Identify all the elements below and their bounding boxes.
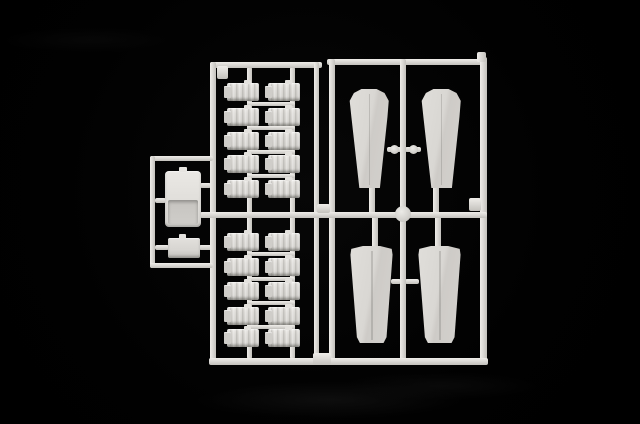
sprue-photo: [0, 0, 640, 424]
rail-tab: [469, 198, 481, 211]
mid-rail: [200, 212, 487, 218]
plastic-sprue: [0, 0, 640, 424]
engine-cylinder-part: [227, 329, 259, 347]
blade-stem: [433, 184, 439, 214]
engine-cylinder-part: [268, 132, 300, 150]
top-rail-right-frame: [327, 59, 486, 65]
engine-cylinder-part: [227, 258, 259, 276]
engine-cylinder-part: [268, 180, 300, 198]
engine-cylinder-part: [268, 83, 300, 101]
tie-bead: [390, 145, 399, 154]
rect-panel-part: [168, 238, 200, 258]
engine-cylinder-part: [268, 258, 300, 276]
loop-top-rail: [150, 156, 213, 161]
cowling-part: [165, 171, 201, 227]
engine-cylinder-part: [227, 282, 259, 300]
blade-stem: [372, 216, 378, 248]
gap-tab: [313, 353, 331, 365]
engine-cylinder-part: [268, 108, 300, 126]
engine-cylinder-part: [268, 329, 300, 347]
engine-cylinder-part: [268, 282, 300, 300]
engine-cylinder-part: [268, 233, 300, 251]
panel-stub: [155, 245, 169, 250]
engine-cylinder-part: [227, 233, 259, 251]
propeller-blade-part: [420, 89, 462, 188]
junction-bead: [395, 206, 411, 222]
propeller-blade-part: [418, 246, 461, 343]
bottom-rail: [209, 358, 488, 365]
engine-cylinder-part: [268, 307, 300, 325]
engine-cylinder-part: [268, 155, 300, 173]
tie-bead: [409, 145, 418, 154]
loop-left-rail: [150, 156, 155, 268]
blade-stem: [369, 184, 375, 214]
engine-cylinder-part: [227, 155, 259, 173]
engine-cylinder-part: [227, 83, 259, 101]
blade-stem: [435, 216, 441, 248]
engine-cylinder-part: [227, 307, 259, 325]
engine-cylinder-part: [227, 132, 259, 150]
loop-bottom-rail: [150, 263, 213, 268]
propeller-blade-part: [350, 246, 393, 343]
engine-cylinder-part: [227, 180, 259, 198]
cowling-recess: [168, 200, 198, 224]
engine-cylinder-part: [227, 108, 259, 126]
propeller-blade-part: [348, 89, 390, 188]
gap-tab: [317, 204, 330, 213]
right-rail-right-frame: [480, 57, 487, 362]
blade-tie: [405, 279, 419, 284]
corner-gusset: [217, 66, 228, 79]
corner-stub: [477, 52, 486, 62]
